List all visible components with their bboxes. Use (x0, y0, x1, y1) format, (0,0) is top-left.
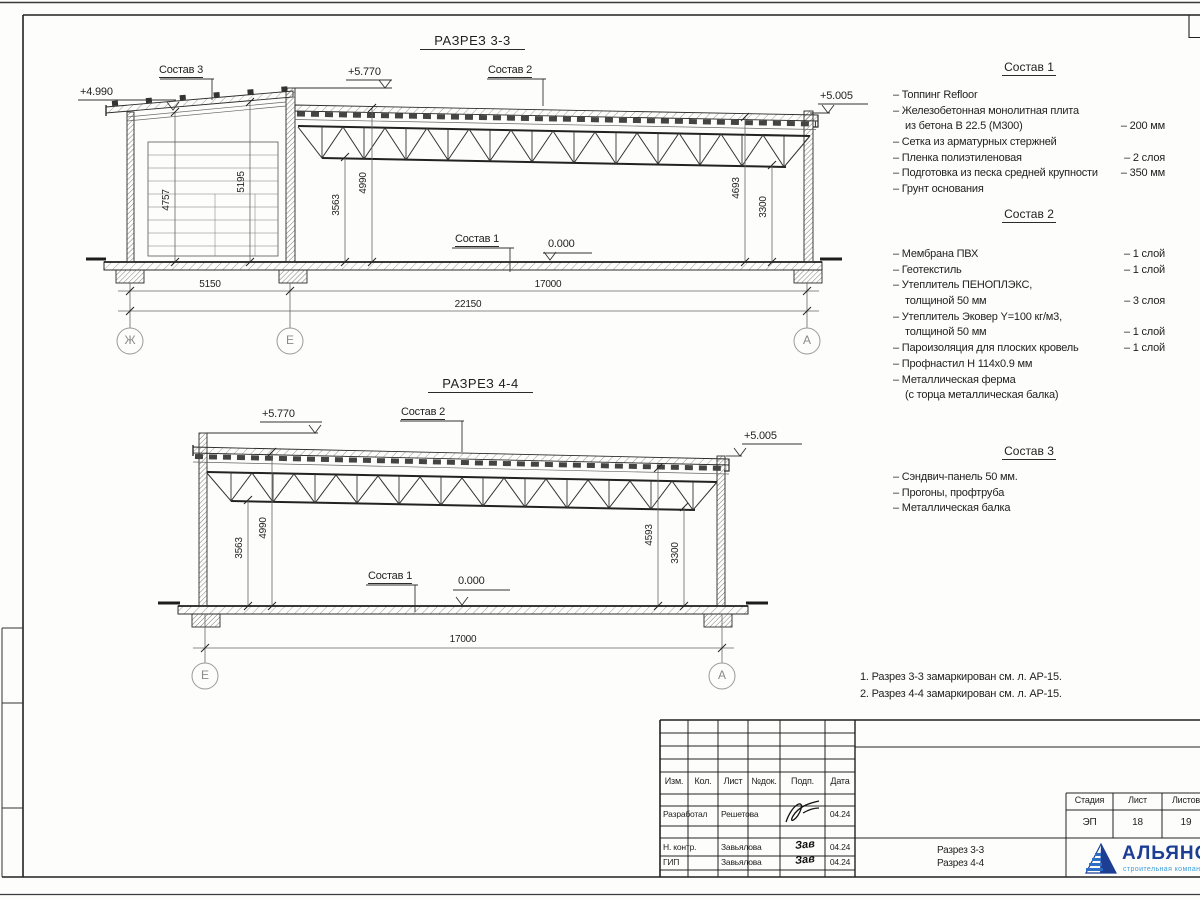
note-1: 1. Разрез 3-3 замаркирован см. л. АР-15. (860, 671, 1062, 683)
dim-22150: 22150 (438, 299, 498, 310)
sheet-value: 18 (1113, 817, 1162, 828)
signature-reshetova (786, 801, 819, 822)
section-3-3-title: РАЗРЕЗ 3-3 (420, 34, 525, 50)
dim-3563-s44: 3563 (233, 526, 245, 570)
drawing-sheet: РАЗРЕЗ 3-3 Состав 3 +4.990 +5.770 Состав… (0, 0, 1200, 900)
material-item: – Пароизоляция для плоских кровель– 1 сл… (893, 342, 1165, 358)
sostav2-list: – Мембрана ПВХ– 1 слой – Геотекстиль– 1 … (893, 248, 1165, 405)
material-item: – Утеплитель ПЕНОПЛЭКС, (893, 279, 1165, 295)
stage-value: ЭП (1066, 817, 1113, 828)
material-item: – Прогоны, профтруба (893, 487, 1165, 503)
material-item: – Топпинг Refloor (893, 89, 1165, 105)
material-item: – Грунт основания (893, 183, 1165, 199)
axis-a-s44: А (709, 669, 735, 682)
titleblock-col-list: Лист (718, 777, 748, 787)
material-item: – Пленка полиэтиленовая– 2 слоя (893, 152, 1165, 168)
titleblock-row2-date: 04.24 (825, 843, 855, 852)
dim-17000-s33: 17000 (518, 279, 578, 290)
doc-name-line2: Разрез 4-4 (855, 858, 1066, 869)
dim-4593: 4593 (643, 513, 655, 557)
signature-zavyalova-2: Зав (794, 853, 815, 867)
section-3-3-sostav3-label: Состав 3 (159, 64, 203, 78)
axis-zh: Ж (117, 334, 143, 347)
section-3-3-sostav2-label: Состав 2 (488, 64, 532, 78)
material-item: (с торца металлическая балка) (893, 389, 1165, 405)
note-2: 2. Разрез 4-4 замаркирован см. л. АР-15. (860, 688, 1062, 700)
dim-5195: 5195 (235, 160, 247, 204)
titleblock-col-data: Дата (825, 777, 855, 787)
material-item: из бетона В 22.5 (М300)– 200 мм (893, 120, 1165, 136)
axis-a-s33: А (794, 334, 820, 347)
material-item: – Профнастил Н 114х0.9 мм (893, 358, 1165, 374)
material-item: – Геотекстиль– 1 слой (893, 264, 1165, 280)
section-4-4-sostav2-label: Состав 2 (401, 406, 445, 420)
sostav2-title: Состав 2 (893, 207, 1165, 221)
section-3-3-level-5005: +5.005 (820, 90, 853, 102)
material-item: – Металлическая ферма (893, 374, 1165, 390)
dim-4757: 4757 (160, 178, 172, 222)
axis-e-s44: Е (192, 669, 218, 682)
material-item: – Утеплитель Эковер Y=100 кг/м3, (893, 311, 1165, 327)
alliance-logo-tagline: строительная компания (1123, 866, 1200, 874)
titleblock-col-izm: Изм. (660, 777, 688, 787)
sostav3-title: Состав 3 (893, 444, 1165, 458)
section-3-3-drawing (78, 79, 868, 354)
section-4-4-level-5005: +5.005 (744, 430, 777, 442)
titleblock-row1-date: 04.24 (825, 810, 855, 819)
material-item: – Железобетонная монолитная плита (893, 105, 1165, 121)
sostav1-title: Состав 1 (893, 60, 1165, 74)
titleblock-col-ndoc: №док. (748, 777, 780, 787)
titleblock-row2-name: Завьялова (721, 843, 762, 852)
sheet-label: Лист (1113, 796, 1162, 806)
section-4-4-level-0000: 0.000 (458, 575, 485, 587)
section-3-3-level-0000: 0.000 (548, 238, 575, 250)
dim-17000-s44: 17000 (433, 634, 493, 645)
titleblock-col-podp: Подп. (780, 777, 825, 787)
section-4-4-drawing (158, 421, 802, 689)
material-item: – Металлическая балка (893, 502, 1165, 518)
titleblock-row3-name: Завьялова (721, 858, 762, 867)
material-item: толщиной 50 мм– 3 слоя (893, 295, 1165, 311)
dim-4990-s44: 4990 (257, 506, 269, 550)
sostav3-list: – Сэндвич-панель 50 мм. – Прогоны, профт… (893, 471, 1165, 518)
section-4-4-level-5770: +5.770 (262, 408, 295, 420)
material-item: – Сетка из арматурных стержней (893, 136, 1165, 152)
dim-3300-s33: 3300 (757, 185, 769, 229)
titleblock-col-kol: Кол. (688, 777, 718, 787)
dim-4990-s33: 4990 (357, 161, 369, 205)
material-item: толщиной 50 мм– 1 слой (893, 326, 1165, 342)
titleblock-row2-role: Н. контр. (663, 843, 696, 852)
dim-3563-s33: 3563 (330, 183, 342, 227)
titleblock-row1-role: Разработал (663, 810, 707, 819)
sheets-label: Листов (1162, 796, 1200, 806)
signature-zavyalova-1: Зав (794, 838, 815, 852)
section-3-3-level-5770: +5.770 (348, 66, 381, 78)
section-3-3-sostav1-label: Состав 1 (455, 233, 499, 247)
alliance-logo-text: АЛЬЯНС (1122, 844, 1200, 865)
alliance-logo-icon (1086, 844, 1116, 873)
section-4-4-title: РАЗРЕЗ 4-4 (428, 377, 533, 393)
axis-e-s33: Е (277, 334, 303, 347)
section-3-3-level-4990: +4.990 (80, 86, 113, 98)
titleblock-row3-role: ГИП (663, 858, 679, 867)
material-item: – Мембрана ПВХ– 1 слой (893, 248, 1165, 264)
doc-name-line1: Разрез 3-3 (855, 845, 1066, 856)
section-4-4-sostav1-label: Состав 1 (368, 570, 412, 584)
dim-3300-s44: 3300 (669, 531, 681, 575)
material-item: – Подготовка из песка средней крупности–… (893, 167, 1165, 183)
titleblock-row3-date: 04.24 (825, 858, 855, 867)
stage-label: Стадия (1066, 796, 1113, 806)
dim-4693: 4693 (730, 166, 742, 210)
titleblock-row1-name: Решетова (721, 810, 758, 819)
material-item: – Сэндвич-панель 50 мм. (893, 471, 1165, 487)
sheets-value: 19 (1162, 817, 1200, 828)
sostav1-list: – Топпинг Refloor – Железобетонная монол… (893, 89, 1165, 199)
dim-5150: 5150 (180, 279, 240, 290)
